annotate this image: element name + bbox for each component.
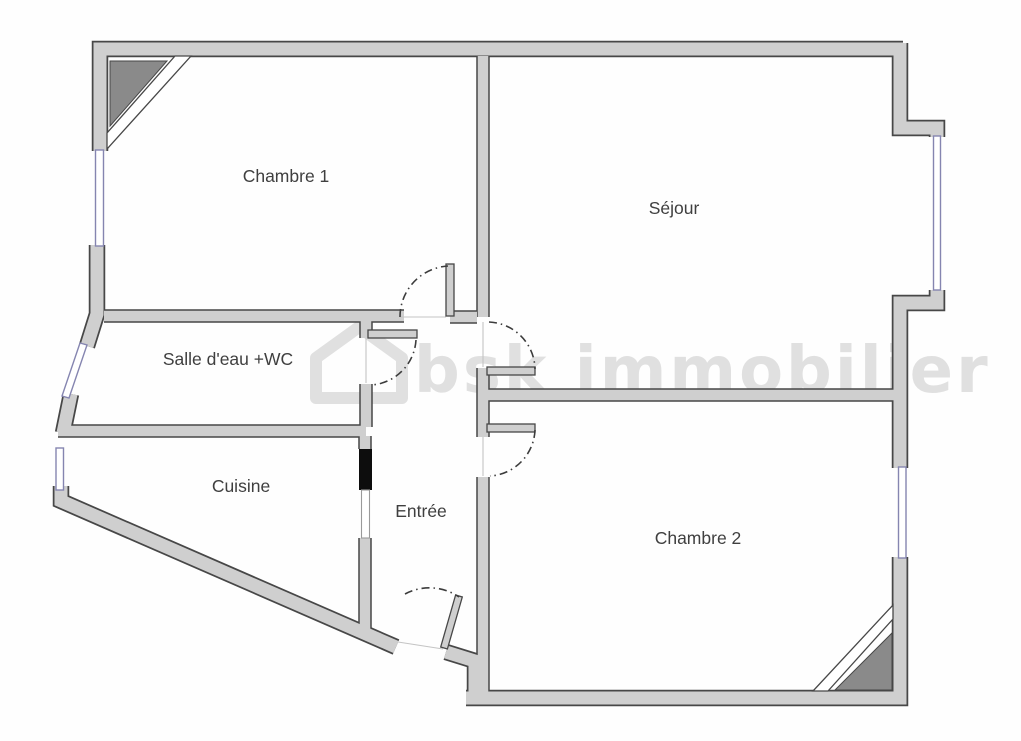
cuisine-black-door <box>359 449 372 490</box>
floor-plan-canvas: bsk immobilier <box>0 0 1021 741</box>
room-label-cuisine: Cuisine <box>212 476 270 496</box>
room-label-chambre-2: Chambre 2 <box>655 528 742 548</box>
floor-plan: bsk immobilier <box>0 0 1021 741</box>
door-leaf-chambre2 <box>487 424 535 432</box>
window-chambre2-right <box>899 467 907 558</box>
room-label-salle-deau-wc: Salle d'eau +WC <box>163 349 293 369</box>
room-label-chambre-1: Chambre 1 <box>243 166 330 186</box>
room-label-entree: Entrée <box>395 501 447 521</box>
window-sejour-bay <box>934 136 941 290</box>
corner-shaft-top-left <box>110 61 167 126</box>
cuisine-wall-opening <box>362 490 370 538</box>
door-leaf-salle-deau <box>368 330 417 338</box>
window-salle-deau-diagonal <box>62 343 87 398</box>
arc-entrance-door <box>405 588 459 597</box>
arc-chambre2-door <box>490 430 535 476</box>
arc-chambre1-door <box>400 266 448 317</box>
window-chambre1-left <box>96 150 104 246</box>
window-cuisine-left <box>56 448 64 490</box>
door-leaf-chambre1 <box>446 264 454 316</box>
door-leaf-sejour <box>487 367 535 375</box>
door-leaf-entrance <box>441 595 463 649</box>
room-label-sejour: Séjour <box>649 198 700 218</box>
